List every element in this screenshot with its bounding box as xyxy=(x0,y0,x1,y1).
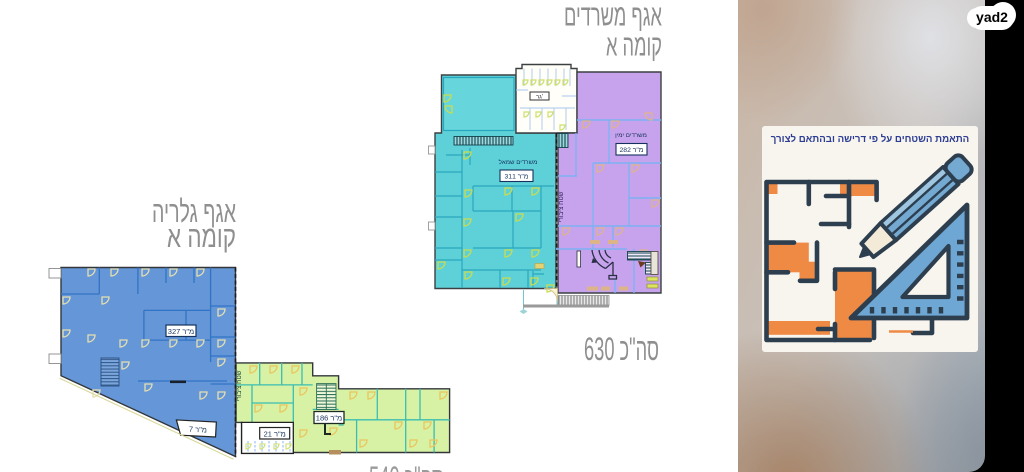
svg-text:משרדים ימין: משרדים ימין xyxy=(615,132,647,139)
svg-text:שטח ציבורי: שטח ציבורי xyxy=(236,370,243,401)
svg-text:משרדים שמאל: משרדים שמאל xyxy=(499,158,538,166)
svg-text:311 מ"ר: 311 מ"ר xyxy=(505,174,529,181)
svg-text:שטח ציבורי: שטח ציבורי xyxy=(558,191,565,222)
svg-text:גר': גר' xyxy=(536,95,543,101)
svg-text:327 מ"ר: 327 מ"ר xyxy=(168,327,194,336)
svg-text:קומה א: קומה א xyxy=(167,221,236,254)
svg-text:אגף משרדים: אגף משרדים xyxy=(564,0,662,33)
svg-text:282 מ"ר: 282 מ"ר xyxy=(620,147,644,154)
svg-text:סה"כ 540: סה"כ 540 xyxy=(369,460,444,472)
svg-text:קומה א: קומה א xyxy=(606,30,662,63)
svg-text:סה"כ 630: סה"כ 630 xyxy=(584,331,659,367)
svg-text:21 מ"ר: 21 מ"ר xyxy=(264,430,286,439)
svg-text:7 מ"ר: 7 מ"ר xyxy=(189,425,208,435)
svg-text:186 מ"ר: 186 מ"ר xyxy=(316,414,342,423)
